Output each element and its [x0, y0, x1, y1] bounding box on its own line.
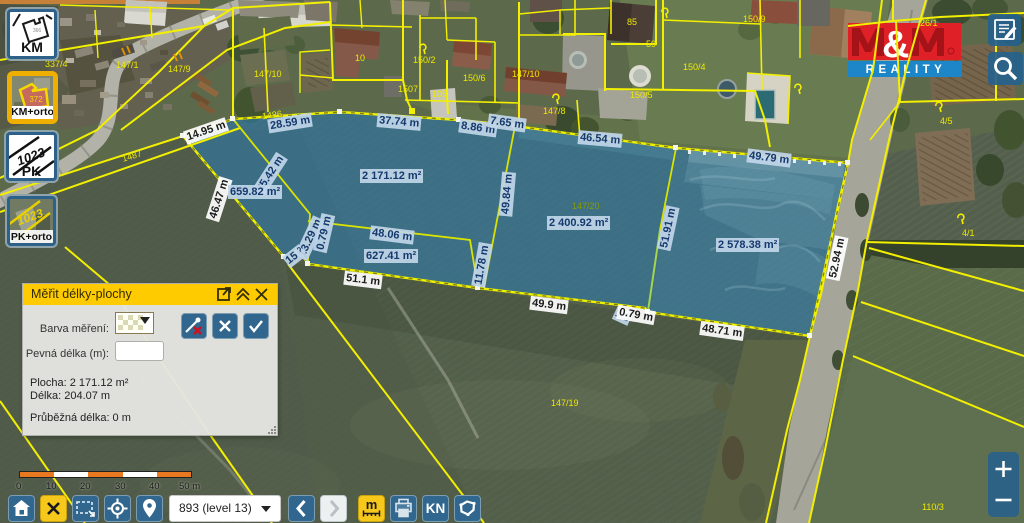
- svg-text:366: 366: [33, 28, 42, 34]
- svg-text:372: 372: [29, 95, 43, 104]
- svg-text:m: m: [366, 497, 378, 512]
